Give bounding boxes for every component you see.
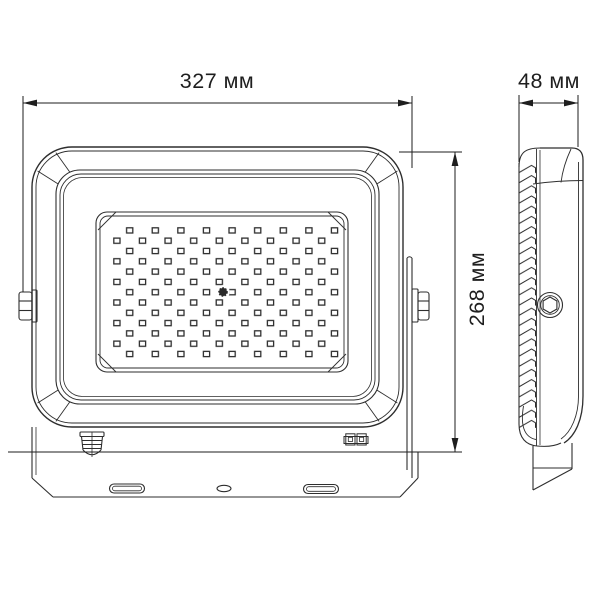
arrowhead <box>452 152 459 166</box>
side-view <box>519 148 583 490</box>
pivot-bolt-side <box>538 293 563 318</box>
bezel-seam <box>533 181 583 185</box>
dimension-width-label: 327 мм <box>180 69 254 93</box>
bracket-slot-right <box>304 485 339 494</box>
arrowhead <box>564 100 578 107</box>
pivot-bolt-left <box>19 290 37 322</box>
arrowhead <box>452 438 459 452</box>
bracket-slot-left <box>110 484 145 493</box>
bracket-arm-side <box>533 443 572 490</box>
dimension-depth-label: 48 мм <box>518 69 580 93</box>
arrowhead <box>519 100 533 107</box>
dimension-height-label: 268 мм <box>465 252 489 326</box>
floodlight-dimension-drawing: 327 мм 48 мм 268 мм <box>0 0 600 600</box>
terminal-clip <box>344 434 368 445</box>
arrowhead <box>398 100 412 107</box>
bracket-hole-center <box>217 485 231 491</box>
drawing-canvas: 327 мм 48 мм 268 мм <box>0 0 600 600</box>
pivot-bolt-right <box>412 289 429 322</box>
front-view <box>19 147 429 497</box>
led-panel <box>96 212 348 372</box>
arrowhead <box>23 100 37 107</box>
heatsink-fins <box>519 163 536 428</box>
cable-gland <box>80 432 104 457</box>
